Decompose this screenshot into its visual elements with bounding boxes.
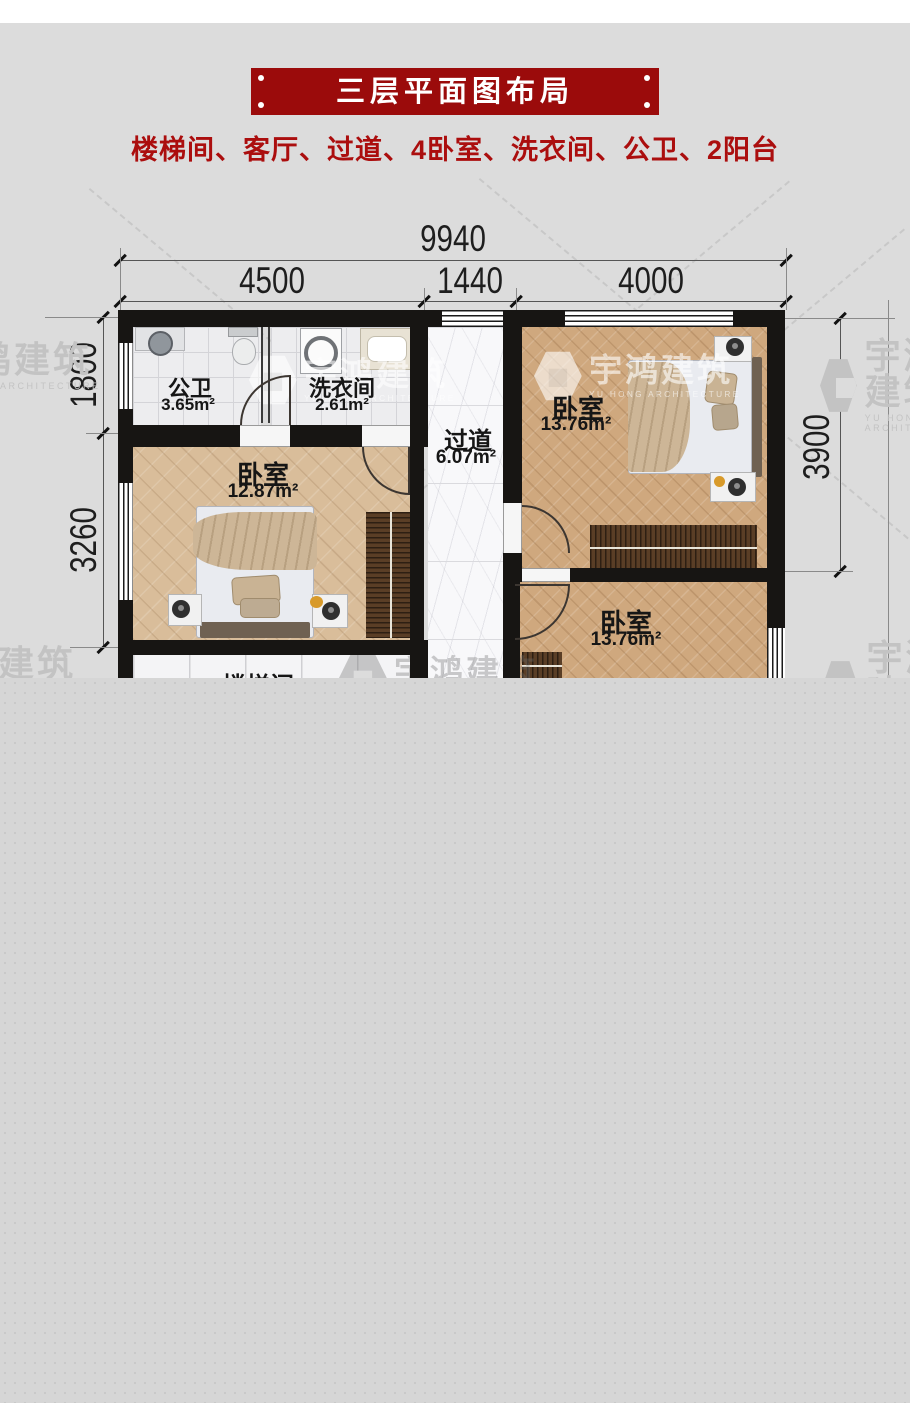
door-threshold <box>522 568 570 582</box>
window-bedroom-top <box>565 310 733 327</box>
bed-headboard <box>752 357 762 477</box>
plant <box>310 596 323 608</box>
wall-mid-horizontal <box>290 425 362 447</box>
wall-hallway-right <box>503 310 522 503</box>
door-threshold <box>362 425 410 447</box>
extension-line <box>120 248 121 310</box>
watermark-logo: 宇鸿建筑 YU HONG ARCHITECTURE <box>0 338 101 394</box>
door-leaf <box>515 584 570 586</box>
top-white-strip <box>0 0 910 23</box>
page-title: 三层平面图布局 <box>251 68 659 115</box>
room-area-bedroom-top-right: 13.76m² <box>541 414 612 436</box>
window-bedroom-left <box>118 483 133 600</box>
dim-line <box>103 317 104 647</box>
floor-plan-page: 三层平面图布局 楼梯间、客厅、过道、4卧室、洗衣间、公卫、2阳台 9940 45… <box>0 0 910 1403</box>
banner-dot <box>258 75 264 81</box>
wall-laundry-hallway <box>410 310 428 425</box>
toilet-tank <box>228 327 258 337</box>
extension-line <box>45 317 118 318</box>
title-banner: 三层平面图布局 <box>251 68 659 115</box>
room-area-bedroom-left: 12.87m² <box>228 481 299 503</box>
dim-width-mid: 1440 <box>406 262 534 300</box>
dim-left-bottom: 3260 <box>65 488 103 592</box>
room-area-bathroom: 3.65m² <box>161 395 215 415</box>
room-area-bedroom-bottom-right: 13.76m² <box>591 629 662 651</box>
lamp <box>322 602 340 620</box>
wall-bedroom-left-bottom <box>118 640 428 655</box>
extension-line <box>516 288 517 310</box>
wall-stair-right <box>410 655 428 678</box>
extension-line <box>424 288 425 310</box>
bathroom-sink <box>148 331 173 356</box>
banner-dot <box>644 75 650 81</box>
door-leaf <box>408 447 410 495</box>
banner-dot <box>644 102 650 108</box>
window-bathroom-left <box>118 343 133 409</box>
wardrobe <box>590 525 757 568</box>
bed-pillow <box>240 598 280 618</box>
extension-line <box>786 248 787 310</box>
bed-pillow <box>711 403 739 431</box>
lamp <box>172 600 190 618</box>
page-subtitle: 楼梯间、客厅、过道、4卧室、洗衣间、公卫、2阳台 <box>0 128 910 167</box>
watermark-logo: 宇鸿建筑 YU HONG ARCHITECTURE <box>820 338 910 433</box>
window-bedroom-right <box>767 628 785 678</box>
lamp <box>728 478 746 496</box>
dim-width-left: 4500 <box>208 262 336 300</box>
window-hallway-top <box>442 310 506 327</box>
wall-between-right-bedrooms <box>570 568 767 582</box>
plant <box>714 476 725 487</box>
watermark-hexagon-icon <box>820 358 857 414</box>
wall-mid-horizontal <box>410 425 428 447</box>
wall-hallway-right <box>503 553 522 582</box>
dim-total-width: 9940 <box>373 220 533 258</box>
dim-line <box>120 301 786 302</box>
bed-headboard <box>200 622 310 638</box>
dim-width-right: 4000 <box>587 262 715 300</box>
extension-line <box>86 433 118 434</box>
door-threshold <box>503 503 522 553</box>
wall-mid-horizontal <box>118 425 240 447</box>
bed-blanket <box>193 512 317 570</box>
wall-bedroom-left-hallway <box>410 447 424 640</box>
room-area-hallway: 6.07m² <box>436 447 496 469</box>
door-leaf <box>289 375 291 425</box>
wardrobe <box>366 512 414 638</box>
extension-line <box>785 571 853 572</box>
image-cutoff-area <box>0 678 910 1403</box>
door-threshold <box>240 425 290 447</box>
room-area-laundry: 2.61m² <box>315 395 369 415</box>
banner-dot <box>258 102 264 108</box>
extension-line <box>785 318 895 319</box>
wall-right <box>767 310 785 678</box>
